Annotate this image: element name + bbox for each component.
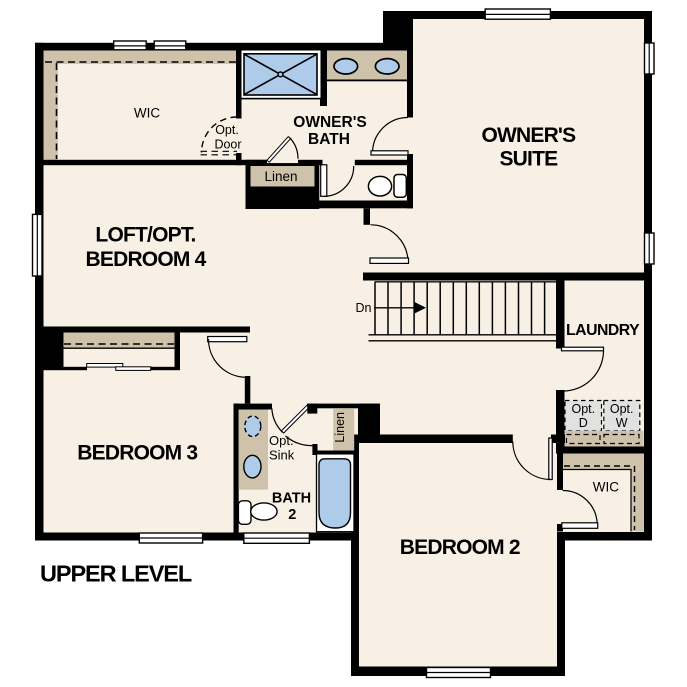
svg-text:Opt.: Opt.: [571, 402, 595, 416]
svg-text:BEDROOM 4: BEDROOM 4: [86, 248, 207, 271]
svg-text:WIC: WIC: [593, 480, 619, 495]
svg-text:BEDROOM 2: BEDROOM 2: [400, 536, 520, 559]
svg-text:Opt.: Opt.: [610, 402, 634, 416]
svg-text:SUITE: SUITE: [499, 148, 558, 171]
svg-text:Linen: Linen: [264, 169, 297, 184]
svg-text:WIC: WIC: [134, 105, 160, 120]
svg-text:Opt.: Opt.: [215, 123, 239, 137]
svg-text:2: 2: [288, 507, 296, 523]
svg-text:UPPER LEVEL: UPPER LEVEL: [40, 561, 192, 587]
svg-text:BATH: BATH: [308, 131, 350, 148]
svg-text:BEDROOM 3: BEDROOM 3: [77, 441, 197, 464]
svg-text:Sink: Sink: [269, 448, 295, 463]
svg-text:W: W: [616, 416, 628, 430]
svg-text:Door: Door: [214, 138, 241, 152]
svg-text:OWNER'S: OWNER'S: [293, 114, 366, 131]
svg-text:OWNER'S: OWNER'S: [481, 124, 576, 147]
svg-text:LAUNDRY: LAUNDRY: [566, 322, 640, 339]
svg-text:BATH: BATH: [272, 491, 311, 507]
svg-text:Dn: Dn: [356, 301, 372, 315]
svg-text:D: D: [579, 416, 588, 430]
svg-text:Opt.: Opt.: [269, 433, 294, 448]
svg-text:Linen: Linen: [333, 412, 347, 443]
svg-text:LOFT/OPT.: LOFT/OPT.: [95, 223, 195, 246]
